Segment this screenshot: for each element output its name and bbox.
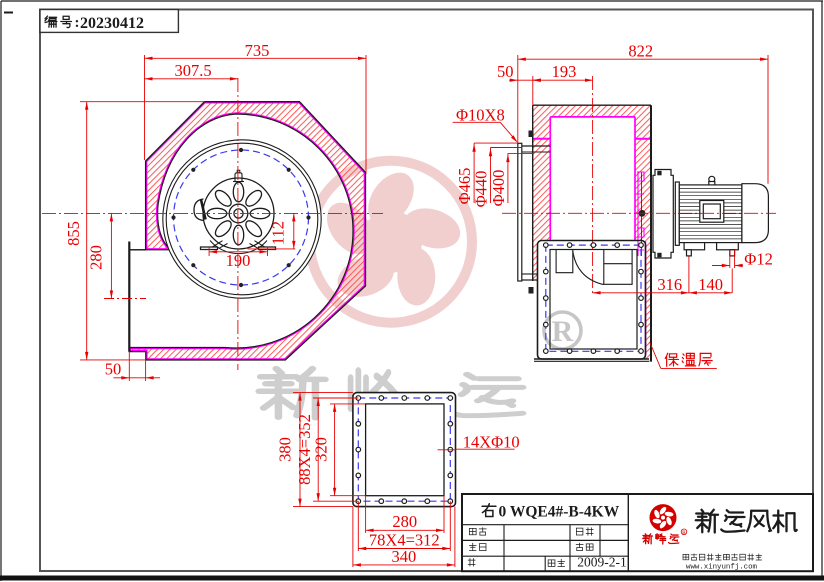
svg-text:340: 340 xyxy=(392,547,417,566)
svg-text:50: 50 xyxy=(497,62,514,81)
svg-text:20230412: 20230412 xyxy=(80,15,144,32)
svg-text:50: 50 xyxy=(105,360,122,379)
svg-text:320: 320 xyxy=(311,437,330,462)
svg-text:Φ12: Φ12 xyxy=(744,250,773,269)
svg-text:140: 140 xyxy=(698,275,723,294)
svg-text:822: 822 xyxy=(628,42,653,61)
svg-text:380: 380 xyxy=(276,437,295,462)
svg-text:Φ440: Φ440 xyxy=(472,171,491,208)
svg-text:190: 190 xyxy=(226,251,251,270)
svg-text:R: R xyxy=(552,315,574,348)
svg-text:855: 855 xyxy=(64,221,83,246)
svg-text:316: 316 xyxy=(657,275,682,294)
svg-text:193: 193 xyxy=(552,62,577,81)
svg-text:735: 735 xyxy=(245,41,270,60)
svg-text:2009-2-1: 2009-2-1 xyxy=(577,555,627,570)
svg-text:Φ400: Φ400 xyxy=(489,170,508,207)
svg-text:R: R xyxy=(682,530,686,536)
svg-text:Φ10X8: Φ10X8 xyxy=(456,106,505,125)
svg-text:0 WQE4#-B-4KW: 0 WQE4#-B-4KW xyxy=(499,504,620,521)
svg-text::: : xyxy=(75,15,80,31)
svg-text:307.5: 307.5 xyxy=(174,61,211,80)
svg-text:280: 280 xyxy=(392,512,417,531)
svg-text:280: 280 xyxy=(87,245,106,270)
svg-text:14XΦ10: 14XΦ10 xyxy=(463,432,520,451)
svg-text:www.xinyunfj.com: www.xinyunfj.com xyxy=(686,564,758,572)
svg-text:112: 112 xyxy=(269,221,288,245)
